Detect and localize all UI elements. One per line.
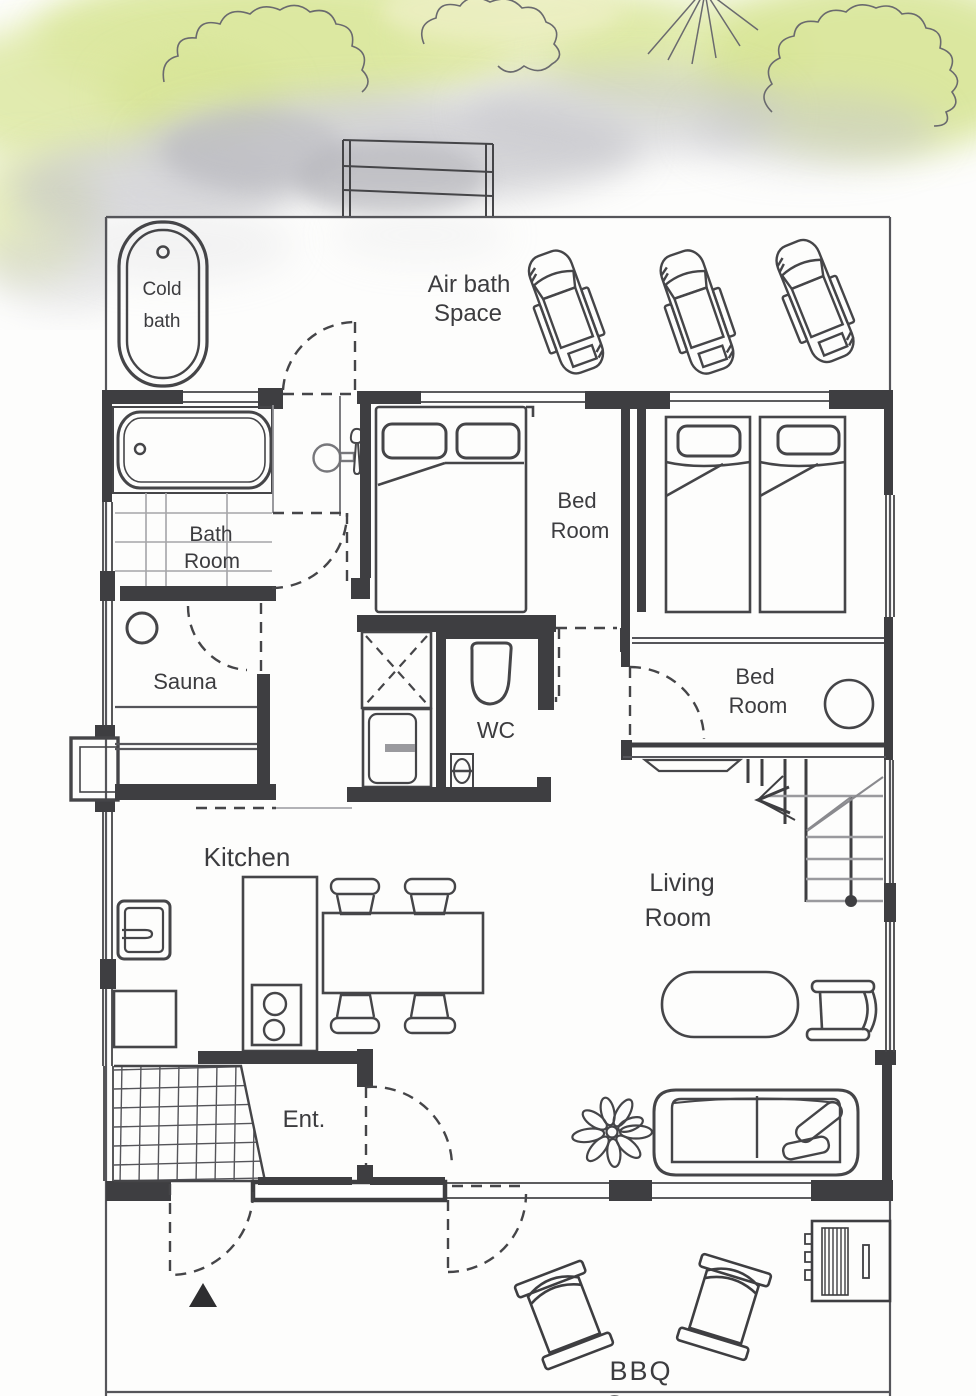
- svg-text:Bed: Bed: [557, 488, 596, 513]
- svg-text:Bath: Bath: [189, 523, 232, 546]
- svg-text:WC: WC: [477, 717, 515, 743]
- svg-text:Kitchen: Kitchen: [204, 842, 291, 872]
- svg-text:Space: Space: [605, 1390, 687, 1396]
- svg-text:Room: Room: [551, 518, 610, 543]
- svg-text:Sauna: Sauna: [153, 669, 217, 694]
- svg-text:Room: Room: [184, 550, 240, 573]
- svg-text:Living: Living: [649, 869, 714, 897]
- svg-text:bath: bath: [144, 311, 181, 332]
- svg-text:Room: Room: [729, 693, 788, 718]
- svg-text:BBQ: BBQ: [609, 1356, 672, 1386]
- svg-text:Bed: Bed: [735, 664, 774, 689]
- svg-text:Ent.: Ent.: [283, 1106, 326, 1133]
- svg-text:Air bath: Air bath: [428, 271, 511, 298]
- svg-text:Room: Room: [645, 904, 712, 932]
- svg-text:Cold: Cold: [142, 279, 181, 300]
- svg-text:Space: Space: [434, 300, 502, 327]
